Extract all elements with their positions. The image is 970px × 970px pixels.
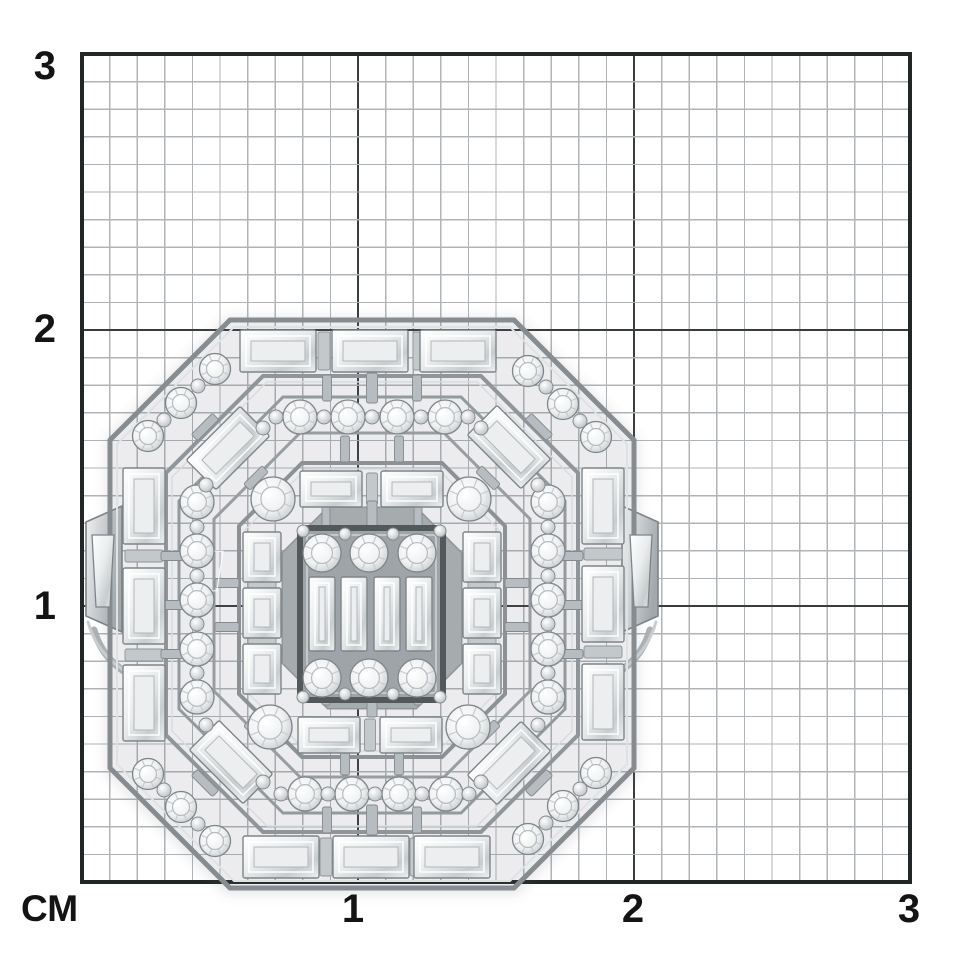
channel-bar (125, 550, 163, 562)
round-sparkle (542, 496, 547, 501)
prong-bead (474, 421, 488, 435)
prong-bead (368, 787, 382, 801)
prong-bead (256, 775, 270, 789)
round-diamond (350, 659, 388, 697)
round-girdle (382, 777, 416, 811)
round-diamond (428, 400, 462, 434)
prong-bead (256, 421, 270, 435)
round-diamond (166, 388, 197, 419)
round-girdle (531, 534, 565, 568)
baguette-diamond (381, 471, 443, 507)
round-diamond (200, 354, 231, 385)
channel-bar (320, 838, 332, 876)
baguette-diamond (123, 468, 165, 544)
round-diamond (513, 824, 544, 855)
round-diamond (446, 705, 490, 749)
round-sparkle (410, 546, 416, 552)
round-sparkle (460, 719, 467, 726)
baguette-table (254, 847, 308, 867)
baguette-diamond (123, 665, 165, 741)
gallery-strut (395, 436, 404, 462)
round-diamond (398, 534, 436, 572)
baguette-table (319, 587, 325, 641)
round-girdle (200, 354, 231, 385)
channel-bar (320, 838, 332, 876)
round-diamond (180, 534, 214, 568)
gallery-strut (395, 436, 404, 462)
prong-bead (157, 783, 171, 797)
round-girdle (513, 356, 544, 387)
round-diamond (335, 777, 369, 811)
gallery-strut (505, 623, 529, 632)
round-sparkle (315, 546, 321, 552)
gallery-strut (505, 579, 529, 588)
round-diamond (303, 534, 341, 572)
x-axis-label-1: 1 (331, 887, 375, 931)
round-sparkle (342, 411, 347, 416)
round-sparkle (191, 594, 196, 599)
baguette-diamond (332, 330, 408, 372)
round-sparkle (299, 788, 304, 793)
baguette-diamond (123, 568, 165, 644)
channel-bar (584, 646, 622, 658)
baguette-table (392, 482, 432, 496)
gallery-strut (367, 373, 378, 403)
round-girdle (531, 632, 565, 666)
round-girdle (248, 705, 292, 749)
round-diamond (380, 400, 414, 434)
round-sparkle (191, 643, 196, 648)
channel-bar (584, 548, 622, 560)
gallery-strut (505, 623, 529, 632)
round-girdle (180, 534, 214, 568)
round-sparkle (542, 691, 547, 696)
x-axis-label-2: 2 (611, 887, 655, 931)
prong-bead (297, 525, 309, 537)
round-sparkle (142, 768, 147, 773)
prong-bead (269, 410, 283, 424)
round-sparkle (315, 671, 321, 677)
prong-bead (541, 520, 555, 534)
round-diamond (398, 659, 436, 697)
baguette-table (474, 655, 490, 683)
round-sparkle (542, 545, 547, 550)
baguette-table (431, 341, 485, 361)
gallery-strut (414, 505, 422, 527)
gallery-strut (413, 807, 422, 833)
baguette-table (474, 543, 490, 571)
prong-bead (415, 787, 429, 801)
round-diamond (531, 534, 565, 568)
round-diamond (166, 792, 197, 823)
channel-bar (318, 332, 330, 370)
gallery-strut (413, 375, 422, 401)
baguette-diamond (582, 566, 624, 642)
gallery-strut (322, 505, 330, 527)
channel-bar (584, 646, 622, 658)
round-diamond (200, 826, 231, 857)
round-girdle (200, 826, 231, 857)
gallery-strut (367, 501, 377, 527)
gallery-strut (323, 807, 332, 833)
prong-bead (541, 666, 555, 680)
prong-bead (157, 413, 171, 427)
round-sparkle (542, 643, 547, 648)
baguette-diamond (298, 717, 360, 753)
round-sparkle (590, 431, 595, 436)
unit-label-cm: СМ (21, 887, 78, 931)
round-diamond (180, 583, 214, 617)
baguette-diamond (243, 532, 281, 582)
round-girdle (398, 659, 436, 697)
round-sparkle (461, 491, 468, 498)
channel-bar (365, 719, 376, 751)
baguette-table (311, 482, 351, 496)
channel-bar (367, 473, 378, 505)
y-axis-label-2: 2 (22, 307, 56, 351)
round-girdle (398, 534, 436, 572)
round-diamond (303, 659, 341, 697)
baguette-diamond (240, 330, 316, 372)
round-girdle (331, 400, 365, 434)
round-girdle (548, 791, 579, 822)
baguette-diamond (582, 664, 624, 740)
round-diamond (447, 477, 491, 521)
gallery-strut (323, 807, 332, 833)
round-girdle (180, 680, 214, 714)
prong-bead (414, 410, 428, 424)
round-girdle (428, 400, 462, 434)
round-girdle (548, 389, 579, 420)
channel-bar (365, 719, 376, 751)
round-girdle (350, 534, 388, 572)
prong-bead (539, 816, 553, 830)
round-girdle (429, 777, 463, 811)
round-sparkle (209, 363, 214, 368)
round-girdle (283, 400, 317, 434)
gallery-strut (367, 805, 378, 835)
gallery-strut (505, 579, 529, 588)
prong-bead (339, 528, 351, 540)
round-girdle (166, 792, 197, 823)
prong-bead (274, 787, 288, 801)
round-diamond (251, 477, 295, 521)
baguette-diamond (333, 836, 409, 878)
round-sparkle (294, 411, 299, 416)
round-diamond (531, 583, 565, 617)
round-girdle (303, 659, 341, 697)
round-diamond (180, 632, 214, 666)
baguette-table (416, 587, 422, 641)
round-sparkle (191, 691, 196, 696)
baguette-diamond (463, 588, 501, 638)
gallery-strut (341, 436, 350, 462)
round-sparkle (346, 788, 351, 793)
round-sparkle (142, 430, 147, 435)
baguette-table (134, 479, 154, 533)
prong-bead (190, 617, 204, 631)
round-sparkle (522, 833, 527, 838)
prong-bead (190, 666, 204, 680)
round-girdle (251, 477, 295, 521)
baguette-diamond (582, 468, 624, 544)
round-girdle (513, 824, 544, 855)
baguette-diamond (406, 577, 432, 651)
round-girdle (180, 632, 214, 666)
round-diamond (531, 632, 565, 666)
baguette-table (425, 847, 479, 867)
baguette-diamond (463, 644, 501, 694)
y-axis-label-1: 1 (22, 584, 56, 628)
prong-bead (190, 569, 204, 583)
round-sparkle (362, 671, 368, 677)
round-sparkle (175, 801, 180, 806)
prong-bead (321, 787, 335, 801)
prong-bead (539, 380, 553, 394)
round-sparkle (265, 491, 272, 498)
baguette-table (351, 587, 357, 641)
round-girdle (166, 388, 197, 419)
round-sparkle (175, 397, 180, 402)
baguette-diamond (414, 836, 490, 878)
round-sparkle (439, 411, 444, 416)
baguette-table (134, 676, 154, 730)
prong-bead (573, 782, 587, 796)
prong-bead (317, 410, 331, 424)
gallery-strut (215, 623, 239, 632)
gallery-strut (215, 623, 239, 632)
y-axis-label-3: 3 (22, 44, 56, 88)
gallery-strut (413, 807, 422, 833)
round-girdle (447, 477, 491, 521)
prong-bead (461, 410, 475, 424)
round-diamond (331, 400, 365, 434)
gallery-strut (367, 373, 378, 403)
prong-bead (541, 617, 555, 631)
prong-bead (573, 414, 587, 428)
round-girdle (380, 400, 414, 434)
gallery-strut (414, 505, 422, 527)
baguette-diamond (341, 577, 367, 651)
round-sparkle (410, 671, 416, 677)
baguette-table (343, 341, 397, 361)
round-sparkle (262, 719, 269, 726)
channel-bar (584, 548, 622, 560)
prong-bead (434, 525, 446, 537)
round-sparkle (440, 788, 445, 793)
baguette-diamond (463, 532, 501, 582)
prong-bead (199, 478, 213, 492)
tapered-baguette-diamond (630, 535, 652, 607)
prong-bead (190, 520, 204, 534)
channel-bar (125, 649, 163, 661)
baguette-table (474, 599, 490, 627)
round-sparkle (362, 546, 368, 552)
round-sparkle (191, 496, 196, 501)
round-diamond (350, 534, 388, 572)
baguette-diamond (243, 836, 319, 878)
round-girdle (288, 777, 322, 811)
channel-bar (125, 550, 163, 562)
prong-bead (474, 775, 488, 789)
baguette-table (254, 543, 270, 571)
round-sparkle (557, 800, 562, 805)
round-sparkle (209, 835, 214, 840)
baguette-table (251, 341, 305, 361)
round-sparkle (557, 398, 562, 403)
prong-bead (365, 410, 379, 424)
round-diamond (548, 791, 579, 822)
gallery-strut (367, 805, 378, 835)
baguette-diamond (420, 330, 496, 372)
round-sparkle (191, 545, 196, 550)
baguette-table (254, 599, 270, 627)
round-girdle (350, 659, 388, 697)
prong-bead (531, 478, 545, 492)
round-diamond (429, 777, 463, 811)
round-girdle (180, 583, 214, 617)
round-sparkle (542, 594, 547, 599)
prong-bead (541, 569, 555, 583)
round-diamond (548, 389, 579, 420)
round-diamond (513, 356, 544, 387)
baguette-table (593, 675, 613, 729)
round-girdle (446, 705, 490, 749)
round-diamond (288, 777, 322, 811)
round-diamond (248, 705, 292, 749)
baguette-diamond (300, 471, 362, 507)
baguette-table (344, 847, 398, 867)
channel-bar (125, 649, 163, 661)
round-sparkle (522, 365, 527, 370)
prong-bead (434, 691, 446, 703)
baguette-diamond (380, 717, 442, 753)
gallery-strut (323, 375, 332, 401)
x-axis-label-3: 3 (887, 887, 931, 931)
baguette-table (384, 587, 390, 641)
baguette-table (309, 728, 349, 742)
round-diamond (531, 680, 565, 714)
baguette-table (593, 479, 613, 533)
round-diamond (382, 777, 416, 811)
ring-photo-svg (0, 0, 970, 970)
gallery-strut (413, 375, 422, 401)
prong-bead (387, 528, 399, 540)
prong-bead (339, 688, 351, 700)
gallery-strut (323, 375, 332, 401)
channel-bar (318, 332, 330, 370)
baguette-diamond (309, 577, 335, 651)
round-diamond (283, 400, 317, 434)
prong-bead (462, 787, 476, 801)
gallery-strut (341, 436, 350, 462)
baguette-table (391, 728, 431, 742)
gallery-strut (322, 505, 330, 527)
round-diamond (180, 680, 214, 714)
round-sparkle (393, 788, 398, 793)
round-girdle (531, 583, 565, 617)
baguette-table (254, 655, 270, 683)
prong-bead (531, 718, 545, 732)
prong-bead (387, 688, 399, 700)
round-sparkle (590, 767, 595, 772)
baguette-table (593, 577, 613, 631)
tapered-baguette-diamond (92, 535, 114, 607)
gallery-strut (367, 501, 377, 527)
baguette-table (134, 579, 154, 633)
prong-bead (191, 379, 205, 393)
round-girdle (531, 680, 565, 714)
round-sparkle (391, 411, 396, 416)
baguette-diamond (374, 577, 400, 651)
baguette-diamond (243, 588, 281, 638)
channel-bar (367, 473, 378, 505)
prong-bead (199, 718, 213, 732)
baguette-diamond (243, 644, 281, 694)
prong-bead (191, 817, 205, 831)
prong-bead (297, 691, 309, 703)
measurement-photo: 3 2 1 1 2 3 СМ (0, 0, 970, 970)
round-girdle (335, 777, 369, 811)
round-girdle (303, 534, 341, 572)
